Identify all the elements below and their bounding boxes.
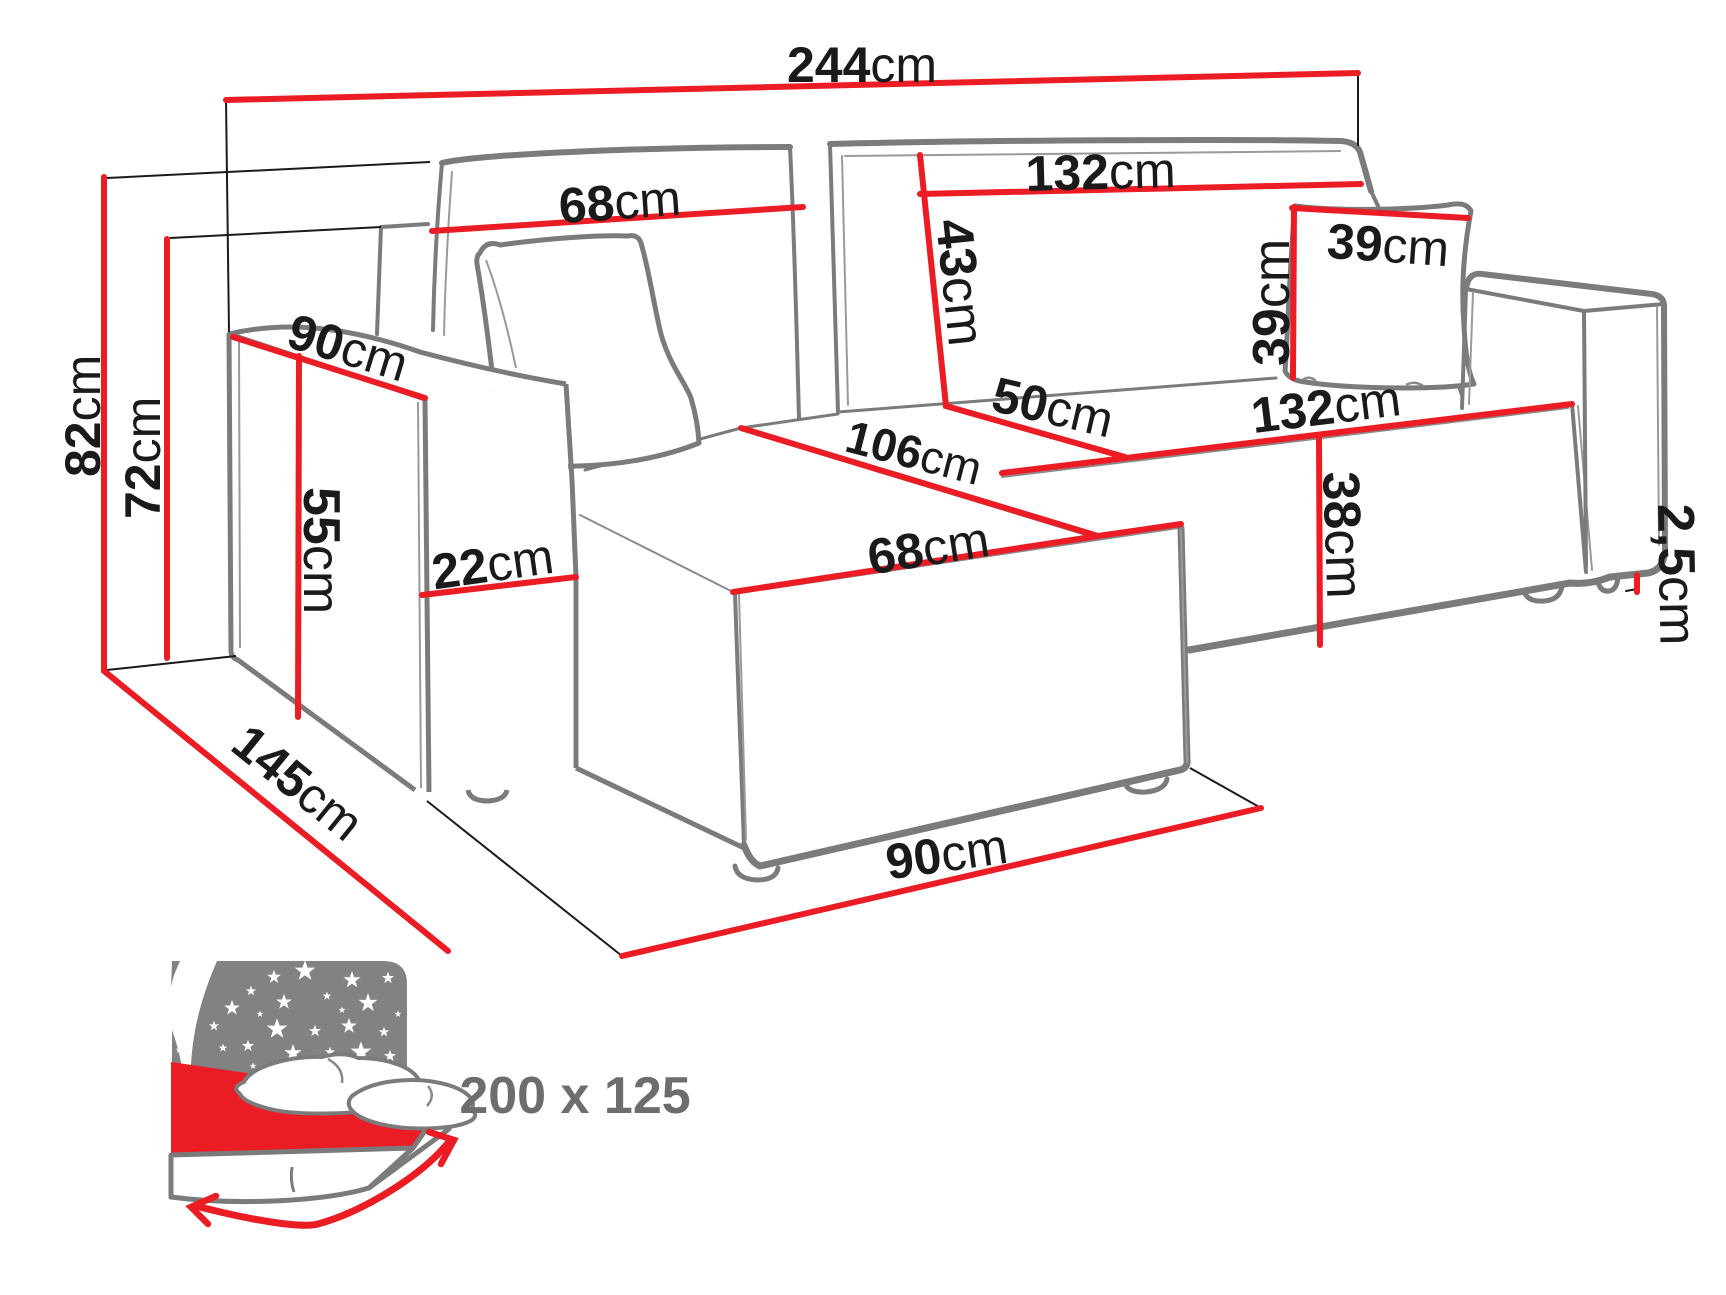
svg-text:68cm: 68cm [557, 170, 683, 234]
svg-text:39cm: 39cm [1325, 213, 1451, 277]
svg-text:200 x 125: 200 x 125 [459, 1067, 690, 1125]
svg-text:82cm: 82cm [55, 355, 111, 477]
svg-text:244cm: 244cm [787, 37, 937, 93]
svg-text:72cm: 72cm [115, 397, 171, 519]
svg-text:132cm: 132cm [1025, 142, 1177, 202]
svg-text:39cm: 39cm [1243, 239, 1301, 366]
svg-text:55cm: 55cm [292, 487, 350, 614]
svg-text:2,5cm: 2,5cm [1646, 503, 1706, 646]
svg-text:38cm: 38cm [1311, 470, 1373, 599]
